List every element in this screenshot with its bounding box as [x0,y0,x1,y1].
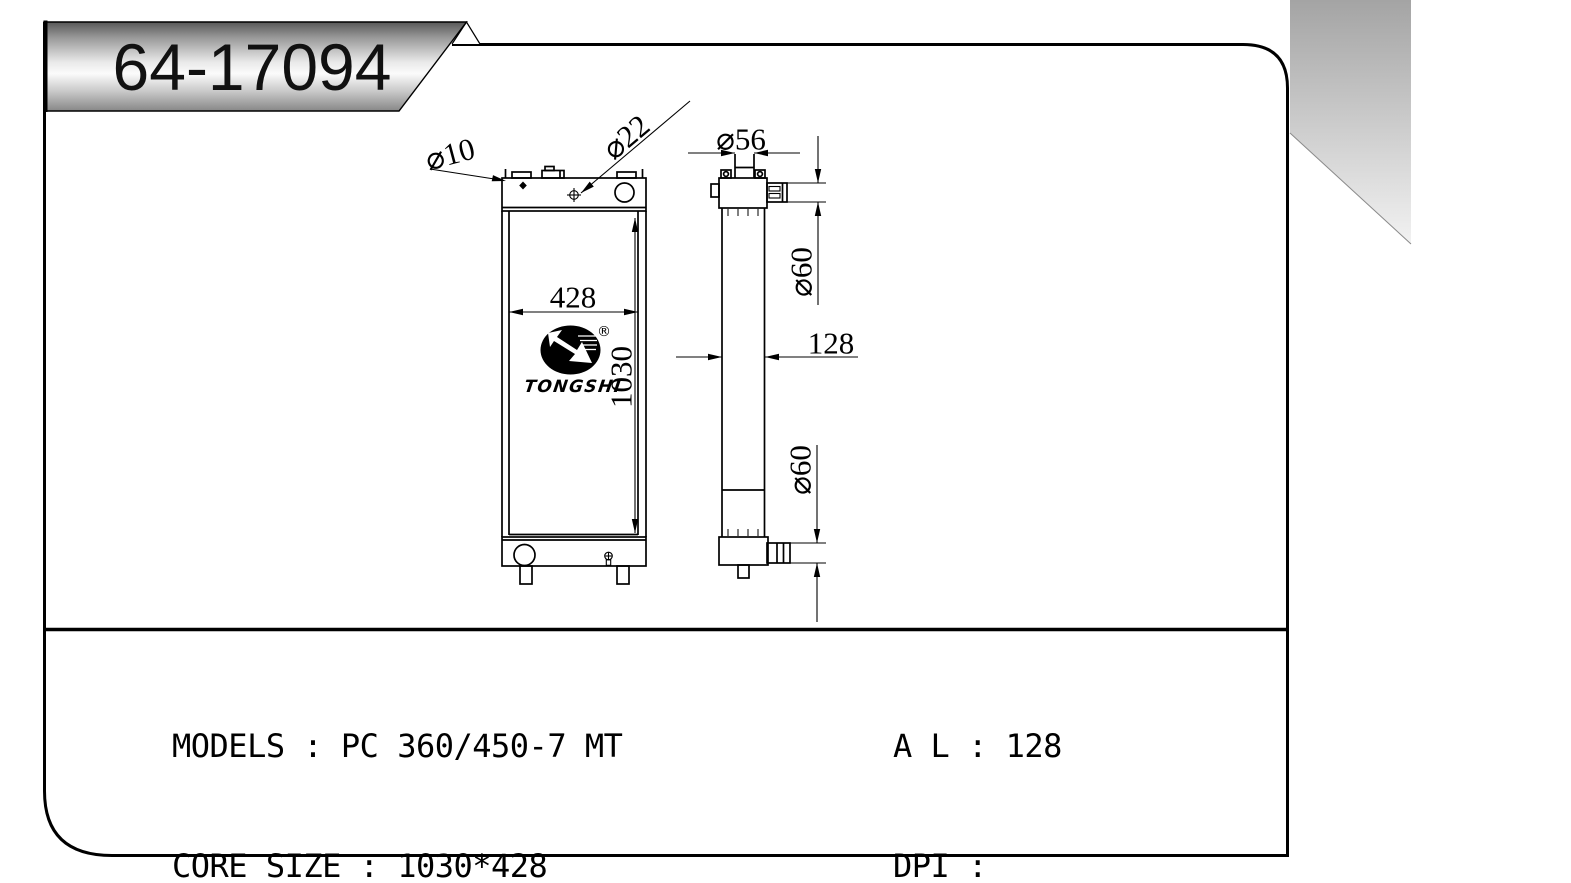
spec-table-right: A L : 128 DPI : OEM : NISSENS: [893,648,1062,883]
dim-hole-large: ⌀22 [596,108,657,167]
part-number-badge: 64-17094 [44,21,480,113]
side-view-fins [728,209,758,536]
dim-top-outlet: ⌀60 [784,247,819,297]
dim-core-width: 428 [550,280,597,315]
dim-bottom-outlet: ⌀60 [783,445,818,495]
dim-hole-small: ⌀10 [421,131,478,178]
side-view [711,154,790,578]
spec-al: A L : 128 [893,724,1062,768]
dim-core-depth: 128 [808,326,855,361]
spec-dpi: DPI : [893,844,1062,883]
part-number: 64-17094 [113,30,392,104]
registered-mark-icon: ® [597,324,611,340]
dim-top-pipe: ⌀56 [716,122,766,157]
spec-models: MODELS : PC 360/450-7 MT [172,724,622,768]
spec-table-left: MODELS : PC 360/450-7 MT CORE SIZE : 103… [172,648,622,883]
spec-core-size: CORE SIZE : 1030*428 [172,844,622,883]
logo-text: TONGSHI [523,377,623,397]
corner-decoration [1290,0,1411,244]
drawing-sheet: 64-17094 [0,0,1571,883]
